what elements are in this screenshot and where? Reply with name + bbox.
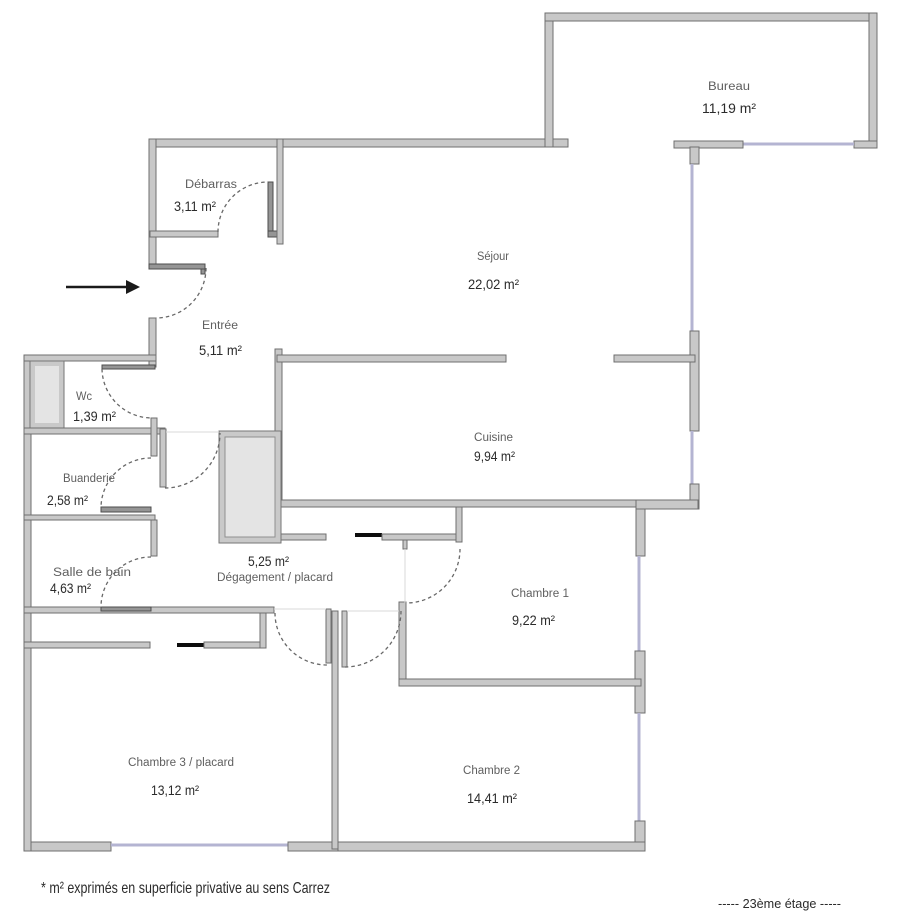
svg-text:3,11 m²: 3,11 m² (174, 198, 216, 214)
svg-text:Séjour: Séjour (477, 251, 509, 263)
svg-text:Entrée: Entrée (202, 320, 238, 332)
svg-text:13,12 m²: 13,12 m² (151, 782, 199, 798)
svg-text:Chambre 2: Chambre 2 (463, 765, 520, 777)
svg-text:Bureau: Bureau (708, 81, 750, 93)
svg-text:Dégagement / placard: Dégagement / placard (217, 572, 333, 584)
svg-text:Cuisine: Cuisine (474, 432, 513, 444)
svg-text:5,25 m²: 5,25 m² (248, 553, 289, 569)
svg-text:Chambre 1: Chambre 1 (511, 588, 569, 600)
svg-text:Chambre 3 / placard: Chambre 3 / placard (128, 757, 234, 769)
svg-text:14,41 m²: 14,41 m² (467, 790, 517, 806)
svg-text:11,19 m²: 11,19 m² (702, 100, 756, 116)
svg-text:Wc: Wc (76, 391, 92, 403)
svg-text:Buanderie: Buanderie (63, 473, 115, 485)
svg-text:----- 23ème étage -----: ----- 23ème étage ----- (718, 896, 841, 911)
svg-text:22,02 m²: 22,02 m² (468, 276, 519, 292)
svg-text:Salle de bain: Salle de bain (53, 567, 131, 579)
svg-text:1,39 m²: 1,39 m² (73, 408, 116, 424)
svg-text:Débarras: Débarras (185, 179, 237, 191)
svg-text:9,94 m²: 9,94 m² (474, 448, 515, 464)
svg-text:* m² exprimés en superficie pr: * m² exprimés en superficie privative au… (41, 880, 330, 897)
svg-text:5,11 m²: 5,11 m² (199, 342, 242, 358)
svg-text:2,58 m²: 2,58 m² (47, 492, 88, 508)
svg-text:9,22 m²: 9,22 m² (512, 612, 555, 628)
svg-text:4,63 m²: 4,63 m² (50, 580, 91, 596)
